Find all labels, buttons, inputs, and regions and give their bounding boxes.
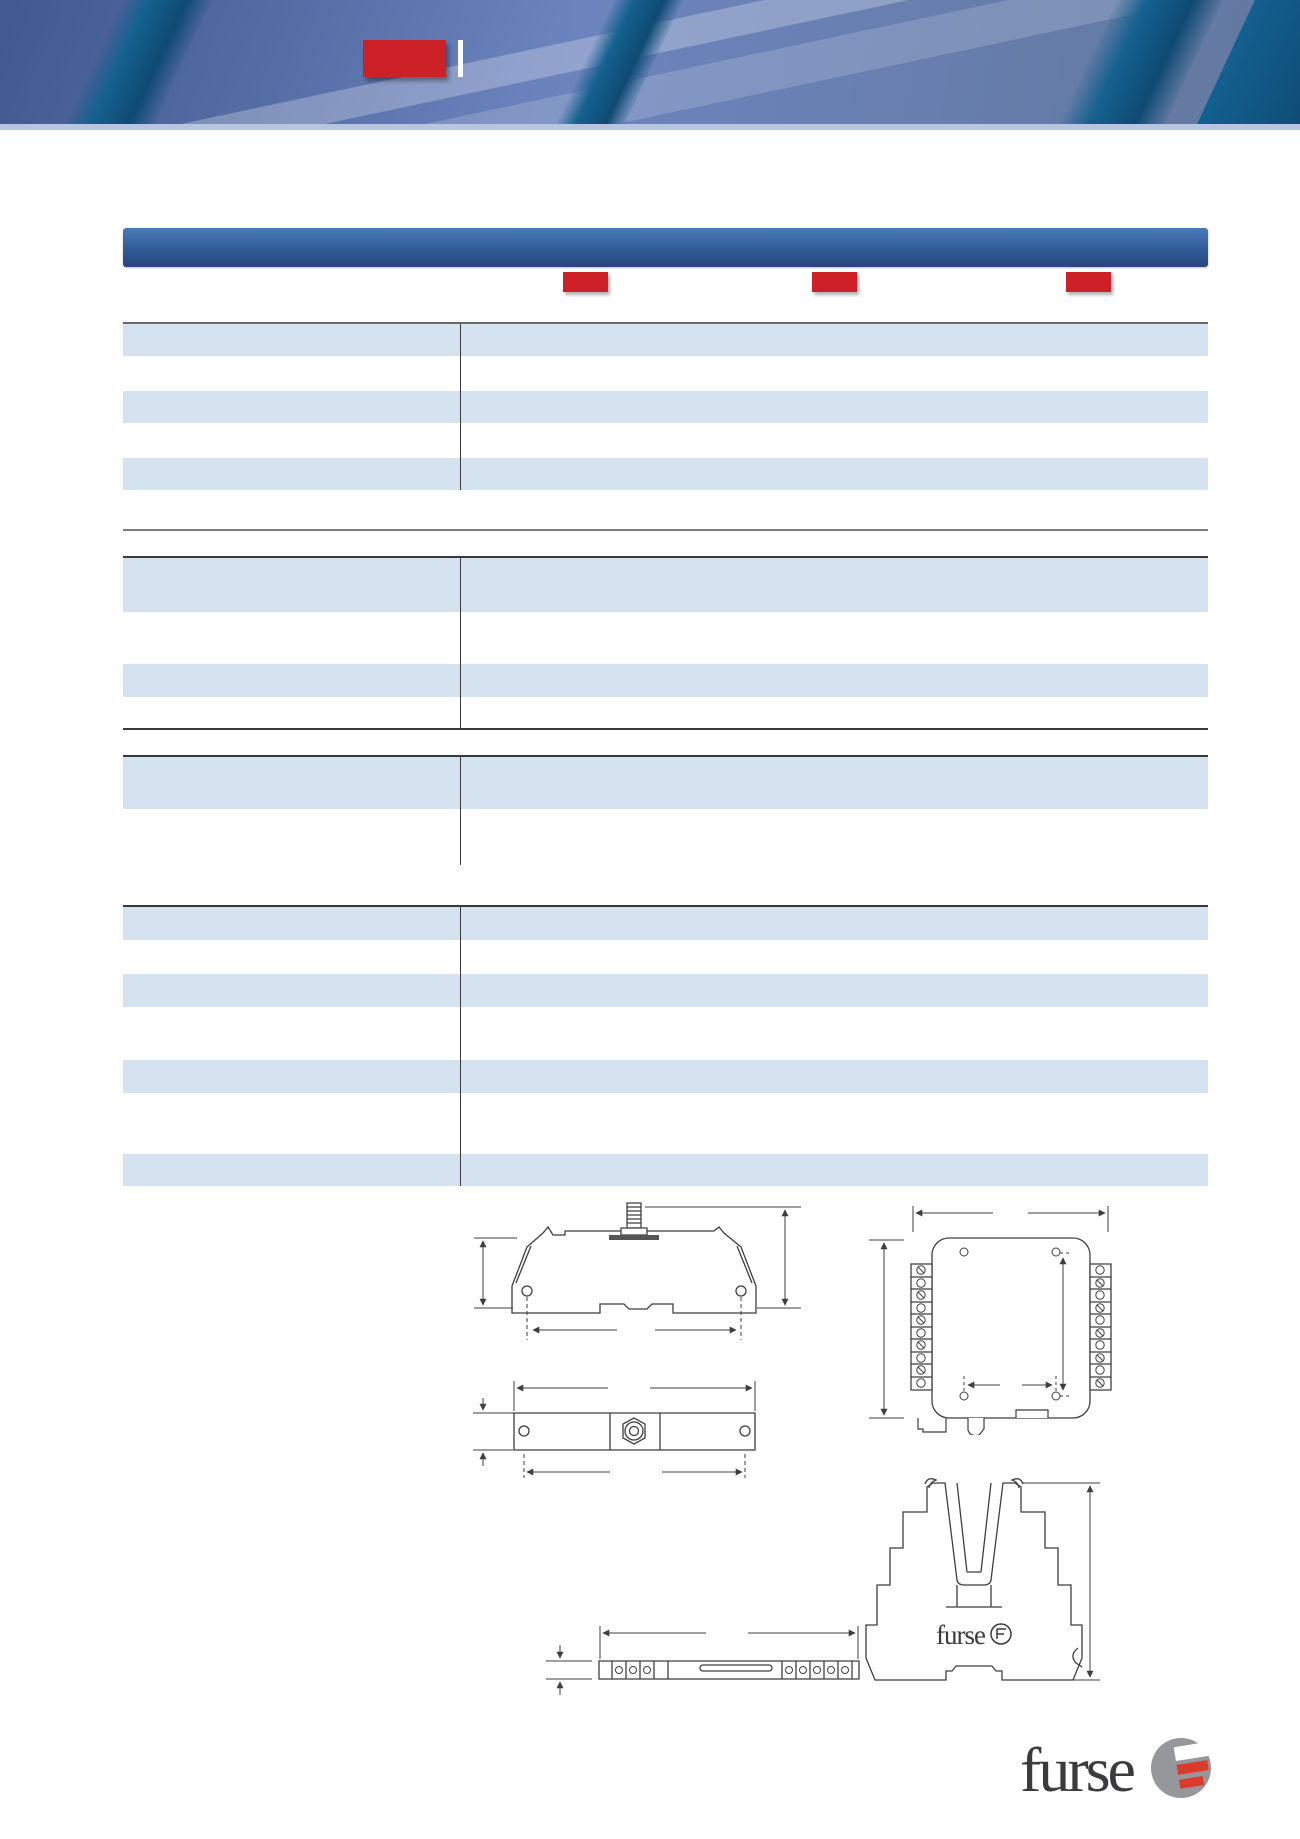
product-code-badge [363, 40, 446, 77]
table-separator-line [123, 529, 1208, 531]
header-rule [0, 124, 1300, 130]
table-row [123, 757, 1208, 809]
table-row [123, 697, 1208, 728]
column-marker [812, 272, 857, 292]
column-divider [460, 907, 461, 1186]
table-row [123, 356, 1208, 391]
front-view-drawing: furse [858, 1473, 1108, 1693]
column-divider [460, 757, 461, 865]
table-row [123, 458, 1208, 490]
table-row [123, 612, 1208, 664]
table-section-3 [123, 755, 1208, 865]
underside-strip-drawing [470, 1618, 890, 1708]
table-row [123, 324, 1208, 356]
table-row [123, 391, 1208, 423]
table-row [123, 558, 1208, 612]
header-title-divider [458, 40, 463, 77]
column-marker [1066, 272, 1111, 292]
table-row [123, 664, 1208, 697]
table-row [123, 1093, 1208, 1154]
table-row [123, 907, 1208, 940]
header-photo [0, 0, 1300, 124]
moulded-logo-text: furse [936, 1620, 986, 1650]
table-row [123, 1060, 1208, 1093]
table-row [123, 940, 1208, 974]
table-row [123, 1007, 1208, 1060]
table-row [123, 974, 1208, 1007]
brand-logo-text: furse [1020, 1742, 1133, 1798]
section-title-bar [123, 228, 1208, 267]
table-section-4 [123, 905, 1208, 1186]
side-view-drawing [455, 1190, 820, 1490]
table-row [123, 423, 1208, 458]
datasheet-page: furse furse [0, 0, 1300, 1839]
table-row [123, 809, 1208, 865]
brand-logo-mark [1150, 1737, 1214, 1799]
column-divider [460, 558, 461, 728]
table-section-1 [123, 322, 1208, 490]
top-view-drawing [865, 1200, 1125, 1435]
column-marker [563, 272, 608, 292]
table-section-2 [123, 556, 1208, 730]
table-row [123, 1154, 1208, 1186]
column-divider [460, 324, 461, 490]
